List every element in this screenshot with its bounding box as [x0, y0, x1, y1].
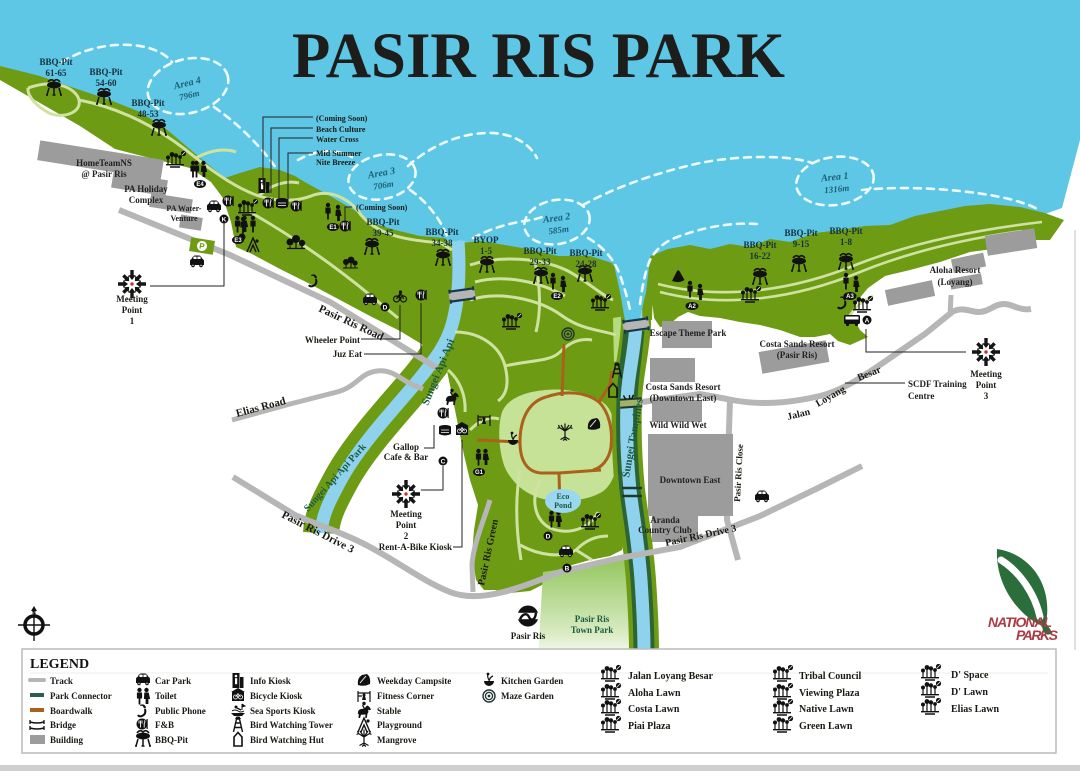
svg-text:BBQ-Pit: BBQ-Pit: [744, 240, 777, 250]
svg-text:BBQ-Pit: BBQ-Pit: [367, 217, 400, 227]
svg-text:Costa Sands Resort: Costa Sands Resort: [759, 339, 834, 349]
svg-text:Costa Sands Resort: Costa Sands Resort: [645, 382, 720, 392]
svg-text:1: 1: [130, 316, 135, 326]
svg-text:(Pasir Ris): (Pasir Ris): [777, 350, 818, 360]
svg-text:Native Lawn: Native Lawn: [799, 704, 854, 715]
svg-text:29-33: 29-33: [530, 257, 551, 267]
svg-text:Loyang: Loyang: [814, 384, 847, 410]
svg-text:Gallop: Gallop: [393, 442, 419, 452]
svg-text:SCDF Training: SCDF Training: [908, 379, 967, 389]
svg-text:B: B: [565, 565, 570, 572]
svg-text:A: A: [865, 317, 870, 324]
svg-text:BBQ-Pit: BBQ-Pit: [524, 246, 557, 256]
svg-text:D' Space: D' Space: [951, 670, 989, 681]
svg-text:Toilet: Toilet: [155, 691, 177, 701]
svg-text:Car Park: Car Park: [155, 676, 191, 686]
svg-text:1-5: 1-5: [480, 246, 492, 256]
svg-text:Water Cross: Water Cross: [316, 135, 359, 144]
svg-text:Escape Theme Park: Escape Theme Park: [650, 328, 727, 338]
svg-text:Jalan Loyang Besar: Jalan Loyang Besar: [628, 671, 714, 682]
svg-text:Downtown East: Downtown East: [660, 475, 721, 485]
svg-text:C: C: [441, 458, 446, 465]
svg-text:BBQ-Pit: BBQ-Pit: [155, 735, 188, 745]
svg-text:24-28: 24-28: [576, 259, 597, 269]
svg-text:E2: E2: [553, 294, 561, 300]
svg-text:E3: E3: [234, 238, 242, 244]
svg-text:Fitness Corner: Fitness Corner: [377, 691, 434, 701]
svg-text:Pond: Pond: [554, 501, 572, 510]
svg-text:Elias Road: Elias Road: [235, 395, 287, 420]
svg-text:Stable: Stable: [377, 706, 401, 716]
svg-text:(Loyang): (Loyang): [937, 277, 972, 287]
svg-text:Besar: Besar: [856, 364, 883, 384]
svg-text:D: D: [546, 533, 551, 540]
svg-text:Town Park: Town Park: [571, 625, 613, 635]
svg-text:@ Pasir Ris: @ Pasir Ris: [81, 169, 127, 179]
svg-text:Jalan: Jalan: [786, 406, 812, 422]
svg-text:Info Kiosk: Info Kiosk: [250, 676, 291, 686]
svg-text:Costa Lawn: Costa Lawn: [628, 704, 680, 715]
svg-text:Bridge: Bridge: [50, 720, 76, 730]
svg-text:Point: Point: [122, 305, 143, 315]
svg-text:Rent-A-Bike Kiosk: Rent-A-Bike Kiosk: [379, 542, 452, 552]
svg-text:PARKS: PARKS: [1016, 627, 1059, 643]
svg-text:PA Holiday: PA Holiday: [124, 184, 168, 194]
svg-text:3: 3: [984, 391, 989, 401]
svg-text:Juz Eat: Juz Eat: [333, 349, 362, 359]
svg-text:BBQ-Pit: BBQ-Pit: [426, 227, 459, 237]
svg-text:16-22: 16-22: [750, 251, 771, 261]
svg-text:E4: E4: [196, 182, 204, 188]
svg-text:Elias Lawn: Elias Lawn: [951, 704, 1000, 715]
svg-text:Park Connector: Park Connector: [50, 691, 112, 701]
svg-text:Kitchen Garden: Kitchen Garden: [501, 676, 563, 686]
svg-text:BYOP: BYOP: [473, 235, 499, 245]
svg-text:39-45: 39-45: [373, 228, 394, 238]
svg-text:Wheeler Point: Wheeler Point: [305, 335, 360, 345]
svg-text:D: D: [383, 304, 388, 311]
svg-text:Complex: Complex: [129, 195, 164, 205]
svg-text:PA Water-: PA Water-: [166, 204, 202, 213]
svg-text:Playground: Playground: [377, 720, 422, 730]
svg-text:48-53: 48-53: [138, 109, 159, 119]
svg-text:Weekday Campsite: Weekday Campsite: [377, 676, 451, 686]
svg-text:Sea Sports Kiosk: Sea Sports Kiosk: [250, 706, 316, 716]
svg-text:Pasir Ris: Pasir Ris: [575, 614, 610, 624]
svg-text:Tribal Council: Tribal Council: [799, 671, 862, 682]
svg-text:Mid Summer: Mid Summer: [316, 149, 362, 158]
svg-text:BBQ-Pit: BBQ-Pit: [785, 228, 818, 238]
svg-text:Wild Wild Wet: Wild Wild Wet: [649, 420, 706, 430]
svg-text:Aloha Lawn: Aloha Lawn: [628, 688, 681, 699]
svg-text:BBQ-Pit: BBQ-Pit: [570, 248, 603, 258]
svg-text:F&B: F&B: [155, 720, 174, 730]
svg-text:Bird Watching Hut: Bird Watching Hut: [250, 735, 324, 745]
svg-text:2: 2: [404, 531, 409, 541]
svg-text:Green Lawn: Green Lawn: [799, 721, 853, 732]
svg-text:34-38: 34-38: [432, 238, 453, 248]
svg-text:Maze Garden: Maze Garden: [501, 691, 554, 701]
svg-text:Track: Track: [50, 676, 73, 686]
svg-text:1-8: 1-8: [840, 237, 852, 247]
svg-text:G1: G1: [475, 470, 484, 476]
svg-text:Aranda: Aranda: [650, 515, 680, 525]
svg-text:BBQ-Pit: BBQ-Pit: [90, 67, 123, 77]
svg-text:Mangrove: Mangrove: [377, 735, 416, 745]
svg-text:Meeting: Meeting: [390, 509, 422, 519]
svg-text:Piai Plaza: Piai Plaza: [628, 721, 671, 732]
svg-text:N: N: [32, 611, 37, 617]
svg-text:Nite Breeze: Nite Breeze: [316, 158, 356, 167]
svg-text:(Downtown East): (Downtown East): [650, 393, 717, 403]
svg-text:Point: Point: [396, 520, 417, 530]
svg-text:BBQ-Pit: BBQ-Pit: [132, 98, 165, 108]
svg-text:Cafe & Bar: Cafe & Bar: [384, 452, 429, 462]
svg-text:A2: A2: [688, 304, 696, 310]
svg-text:Aloha Resort: Aloha Resort: [930, 265, 981, 275]
svg-text:9-15: 9-15: [793, 239, 810, 249]
svg-text:PASIR RIS PARK: PASIR RIS PARK: [292, 20, 785, 92]
svg-text:Bicycle Kiosk: Bicycle Kiosk: [250, 691, 302, 701]
svg-text:54-60: 54-60: [96, 78, 117, 88]
svg-text:Meeting: Meeting: [970, 369, 1002, 379]
svg-text:BBQ-Pit: BBQ-Pit: [830, 226, 863, 236]
svg-text:Beach Culture: Beach Culture: [316, 125, 366, 134]
svg-text:Pasir Ris: Pasir Ris: [511, 631, 546, 641]
svg-text:LEGEND: LEGEND: [30, 657, 89, 672]
svg-text:A3: A3: [846, 294, 854, 300]
svg-text:HomeTeamNS: HomeTeamNS: [76, 158, 132, 168]
svg-text:Point: Point: [976, 380, 997, 390]
svg-text:Centre: Centre: [908, 391, 934, 401]
svg-text:Viewing Plaza: Viewing Plaza: [799, 688, 859, 699]
svg-text:BBQ-Pit: BBQ-Pit: [40, 57, 73, 67]
svg-text:Eco: Eco: [557, 492, 570, 501]
svg-text:D' Lawn: D' Lawn: [951, 687, 988, 698]
svg-text:Pasir Ris Close: Pasir Ris Close: [732, 444, 745, 502]
svg-text:(Coming Soon): (Coming Soon): [356, 203, 408, 212]
svg-text:(Coming Soon): (Coming Soon): [316, 114, 368, 123]
svg-text:61-65: 61-65: [46, 68, 67, 78]
svg-text:Boardwalk: Boardwalk: [50, 706, 93, 716]
svg-text:Venture: Venture: [170, 214, 198, 223]
svg-text:E1: E1: [329, 225, 337, 231]
svg-text:Bird Watching Tower: Bird Watching Tower: [250, 720, 333, 730]
svg-text:Building: Building: [50, 735, 84, 745]
svg-text:Public Phone: Public Phone: [155, 706, 206, 716]
